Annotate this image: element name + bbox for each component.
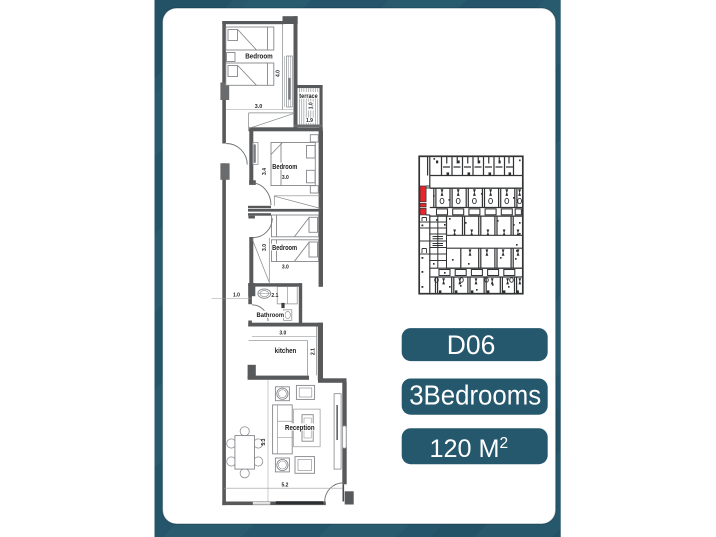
svg-text:Bedroom: Bedroom	[272, 245, 297, 252]
svg-text:5.2: 5.2	[282, 483, 289, 489]
svg-text:3.0: 3.0	[279, 331, 286, 337]
svg-text:Bedroom: Bedroom	[245, 54, 273, 61]
svg-text:Bedroom: Bedroom	[272, 164, 297, 171]
svg-text:1.9: 1.9	[306, 118, 313, 124]
svg-text:2.1: 2.1	[271, 293, 278, 299]
svg-text:3.0: 3.0	[282, 265, 289, 271]
svg-text:Bathroom: Bathroom	[257, 312, 285, 319]
svg-text:3.4: 3.4	[262, 168, 268, 175]
svg-text:2.1: 2.1	[311, 348, 317, 355]
svg-text:120 M2: 120 M2	[429, 435, 508, 463]
svg-text:1.0: 1.0	[308, 102, 314, 109]
svg-text:terrace: terrace	[299, 93, 318, 100]
svg-text:kitchen: kitchen	[275, 346, 297, 355]
svg-text:3Bedrooms: 3Bedrooms	[409, 380, 541, 411]
svg-text:5.3: 5.3	[261, 438, 267, 445]
svg-text:4.0: 4.0	[276, 70, 282, 77]
svg-text:3.0: 3.0	[262, 244, 268, 251]
svg-text:3.0: 3.0	[255, 104, 263, 110]
svg-text:Reception: Reception	[285, 423, 315, 432]
svg-text:3.0: 3.0	[282, 175, 289, 181]
svg-text:1.0: 1.0	[233, 292, 240, 298]
svg-text:D06: D06	[447, 330, 496, 360]
